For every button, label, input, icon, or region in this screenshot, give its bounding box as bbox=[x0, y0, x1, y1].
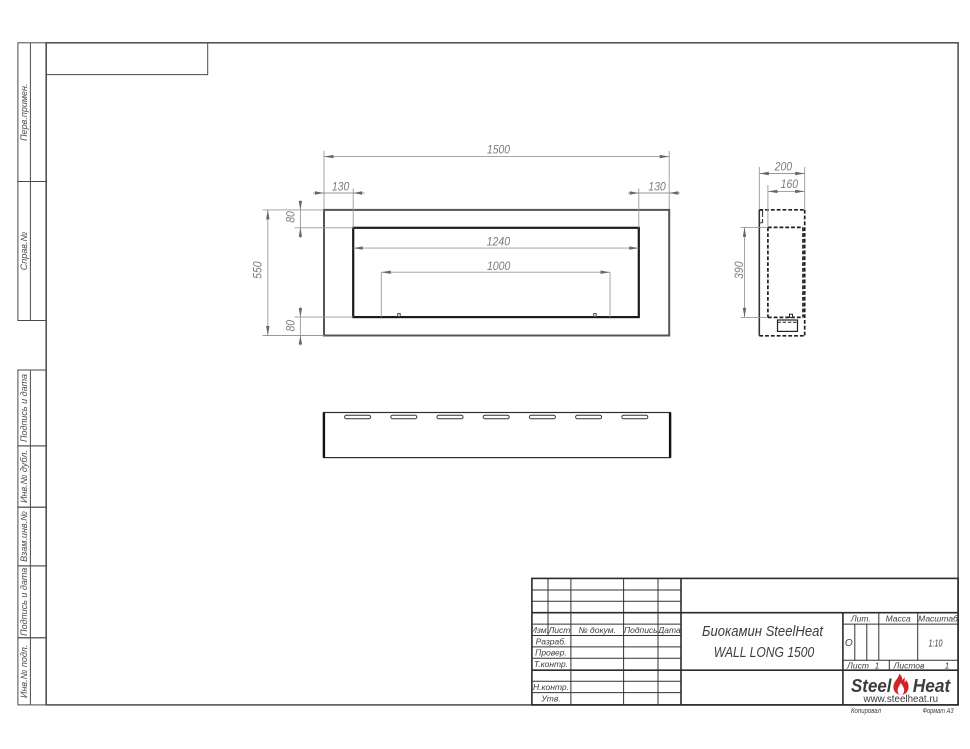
svg-text:Провер.: Провер. bbox=[535, 648, 567, 658]
svg-text:Инв.№ дубл.: Инв.№ дубл. bbox=[19, 450, 29, 503]
svg-text:Листов: Листов bbox=[893, 661, 926, 671]
svg-text:Изм.: Изм. bbox=[531, 625, 549, 635]
svg-text:1240: 1240 bbox=[487, 235, 511, 249]
svg-text:160: 160 bbox=[781, 177, 799, 191]
svg-text:130: 130 bbox=[648, 179, 666, 193]
svg-text:1: 1 bbox=[945, 661, 950, 671]
svg-text:Формат А3: Формат А3 bbox=[923, 706, 955, 715]
svg-text:Лист: Лист bbox=[547, 625, 570, 635]
svg-text:Разраб.: Разраб. bbox=[536, 636, 567, 646]
svg-text:Дата: Дата bbox=[657, 625, 681, 635]
svg-text:Подпись: Подпись bbox=[624, 625, 658, 635]
svg-text:1: 1 bbox=[875, 661, 880, 671]
svg-text:1000: 1000 bbox=[487, 259, 511, 273]
svg-text:Инв.№ подл.: Инв.№ подл. bbox=[19, 645, 29, 698]
svg-text:80: 80 bbox=[284, 320, 298, 332]
svg-text:Масса: Масса bbox=[886, 614, 911, 624]
svg-text:200: 200 bbox=[774, 160, 793, 174]
svg-text:130: 130 bbox=[332, 179, 350, 193]
svg-text:Перв.примен.: Перв.примен. bbox=[19, 84, 29, 141]
svg-text:Утв.: Утв. bbox=[540, 693, 560, 703]
svg-text:Н.контр.: Н.контр. bbox=[533, 682, 569, 692]
svg-text:www.steelheat.ru: www.steelheat.ru bbox=[863, 694, 938, 705]
svg-text:Подпись и дата: Подпись и дата bbox=[19, 568, 29, 636]
svg-text:Масштаб: Масштаб bbox=[918, 614, 959, 624]
svg-text:Справ.№: Справ.№ bbox=[19, 232, 29, 271]
svg-text:Копировал: Копировал bbox=[851, 706, 882, 715]
svg-text:Лист: Лист bbox=[846, 661, 869, 671]
svg-text:WALL LONG 1500: WALL LONG 1500 bbox=[714, 645, 815, 661]
svg-text:550: 550 bbox=[251, 261, 265, 279]
svg-text:Взам.инв.№: Взам.инв.№ bbox=[19, 511, 29, 562]
svg-text:Т.контр.: Т.контр. bbox=[534, 659, 568, 669]
svg-text:1:10: 1:10 bbox=[929, 639, 943, 650]
svg-text:1500: 1500 bbox=[487, 142, 510, 156]
svg-text:Биокамин SteelHeat: Биокамин SteelHeat bbox=[702, 624, 824, 640]
svg-text:390: 390 bbox=[732, 261, 746, 279]
svg-text:О: О bbox=[845, 638, 853, 649]
svg-text:80: 80 bbox=[284, 211, 298, 223]
svg-text:Подпись и дата: Подпись и дата bbox=[19, 374, 29, 442]
svg-text:Лит.: Лит. bbox=[850, 614, 871, 624]
svg-text:№ докум.: № докум. bbox=[578, 625, 615, 635]
